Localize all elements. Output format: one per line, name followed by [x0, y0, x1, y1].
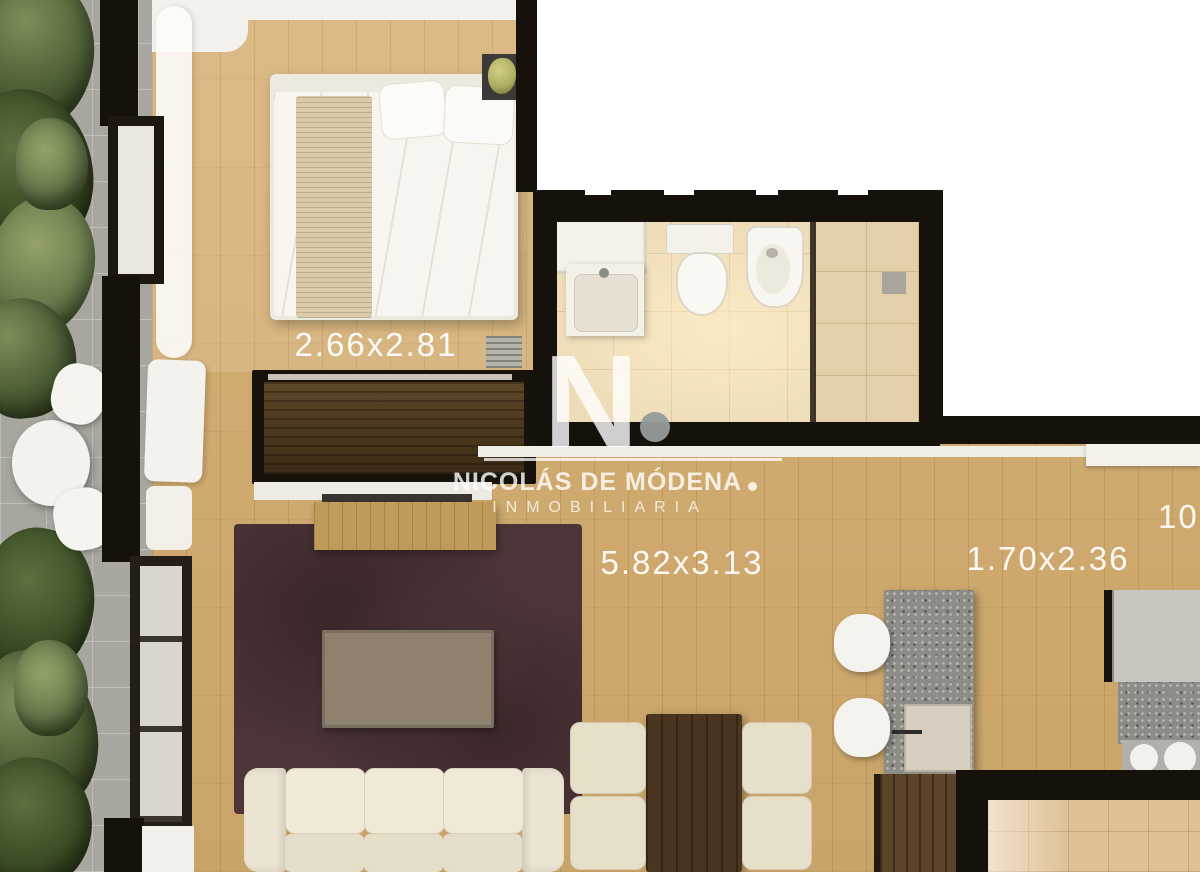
watermark-rule — [484, 458, 782, 461]
bidet-faucet — [766, 248, 778, 258]
bed-knit-runner — [296, 96, 372, 318]
dimension-label-bedroom: 2.66x2.81 — [288, 326, 464, 364]
dining-chair — [570, 796, 646, 870]
left-wall-segment — [100, 0, 138, 126]
ac-vent — [486, 336, 522, 368]
kitchen-top-counter — [1086, 444, 1200, 466]
bar-stool — [834, 614, 890, 672]
dimension-label-clipped: 10 — [1158, 498, 1200, 536]
watermark-name: NICOLÁS DE MÓDENA — [453, 468, 742, 497]
watermark-tagline: INMOBILIARIA — [420, 499, 780, 517]
kitchen-counter — [1118, 682, 1200, 744]
dining-chair — [742, 722, 812, 794]
sink-faucet — [892, 730, 922, 734]
watermark-monogram: N — [536, 336, 646, 476]
kitchen-sink — [904, 704, 972, 772]
bedroom-window-glass — [118, 126, 154, 274]
sofa-seat-cushion — [443, 834, 522, 872]
dimension-label-living: 5.82x3.13 — [596, 544, 768, 582]
left-wall-segment — [104, 818, 144, 872]
counter-edge — [1104, 590, 1112, 682]
floor-plan-canvas: 2.66x2.81 5.82x3.13 1.70x2.36 10 N NICOL… — [0, 0, 1200, 872]
toilet-tank — [666, 224, 734, 254]
plant-blob — [16, 118, 88, 210]
window-armchair — [144, 359, 206, 483]
living-window-glass — [140, 566, 182, 822]
shower-drain-fixture — [882, 272, 906, 294]
watermark-name-row: NICOLÁS DE MÓDENA — [420, 468, 790, 497]
white-cutout-right — [943, 0, 1200, 416]
vanity-faucet — [599, 268, 609, 278]
bar-stool — [834, 698, 890, 757]
sofa-seat-cushion — [285, 834, 364, 872]
bottom-right-wall — [956, 770, 1200, 802]
dining-chair — [742, 796, 812, 870]
fridge — [1112, 590, 1200, 682]
window-sill — [142, 826, 194, 872]
watermark-monogram-dot — [640, 412, 670, 442]
bathroom-wall-right — [919, 176, 943, 428]
vanity-basin — [574, 274, 638, 332]
sofa-back-cushion — [285, 768, 366, 834]
sofa-seat-cushion — [364, 834, 443, 872]
shower-glass-partition — [810, 218, 816, 428]
coffee-table — [322, 630, 494, 728]
sofa-arm-right — [522, 768, 564, 872]
plant-blob — [14, 640, 88, 736]
cooktop-burner — [1130, 744, 1158, 772]
dining-table — [646, 714, 742, 872]
bottom-right-wall-column — [956, 770, 990, 872]
watermark-name-dot-icon — [748, 482, 757, 491]
kitchen-wall-top — [938, 414, 1200, 444]
left-wall-segment — [102, 276, 140, 562]
wardrobe-top-slit — [268, 374, 512, 380]
window-armchair-ottoman — [146, 486, 192, 550]
sofa-back-cushion — [443, 768, 524, 834]
bed-pillow — [378, 79, 449, 141]
toilet-bowl — [676, 252, 728, 316]
dimension-label-kitchen: 1.70x2.36 — [962, 540, 1134, 578]
shower-floor — [814, 210, 925, 428]
entry-closet — [874, 774, 968, 872]
sofa-arm-left — [244, 768, 286, 872]
sofa-back-cushion — [364, 768, 445, 834]
second-bathroom-floor — [988, 800, 1200, 872]
dining-chair — [570, 722, 646, 794]
